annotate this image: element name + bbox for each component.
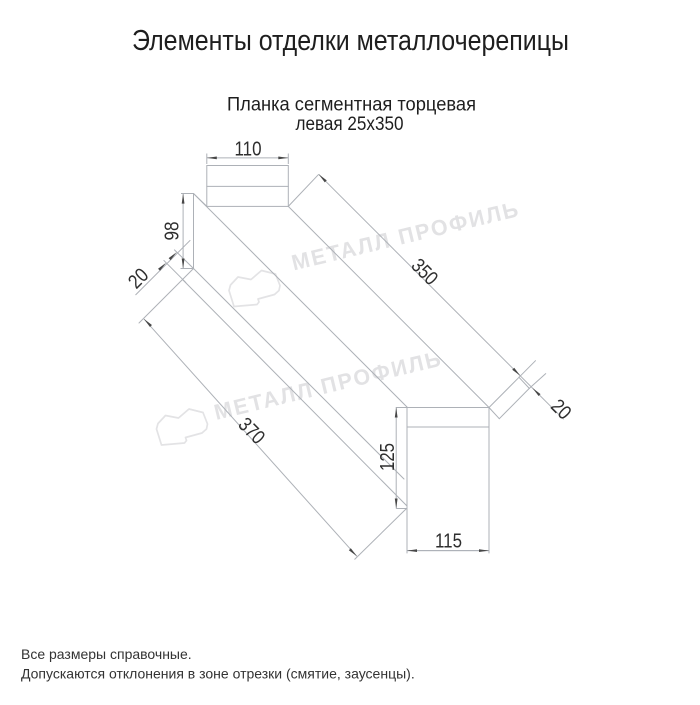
- svg-text:98: 98: [162, 222, 184, 241]
- svg-text:115: 115: [435, 531, 462, 553]
- svg-text:Все размеры справочные.: Все размеры справочные.: [21, 646, 192, 662]
- svg-text:125: 125: [377, 443, 399, 471]
- svg-text:110: 110: [235, 139, 262, 161]
- svg-text:Допускаются отклонения в зоне: Допускаются отклонения в зоне отрезки (с…: [21, 666, 415, 682]
- svg-text:Элементы отделки металлочерепи: Элементы отделки металлочерепицы: [132, 25, 569, 57]
- svg-text:левая 25х350: левая 25х350: [296, 114, 404, 135]
- svg-text:Планка сегментная торцевая: Планка сегментная торцевая: [227, 95, 476, 116]
